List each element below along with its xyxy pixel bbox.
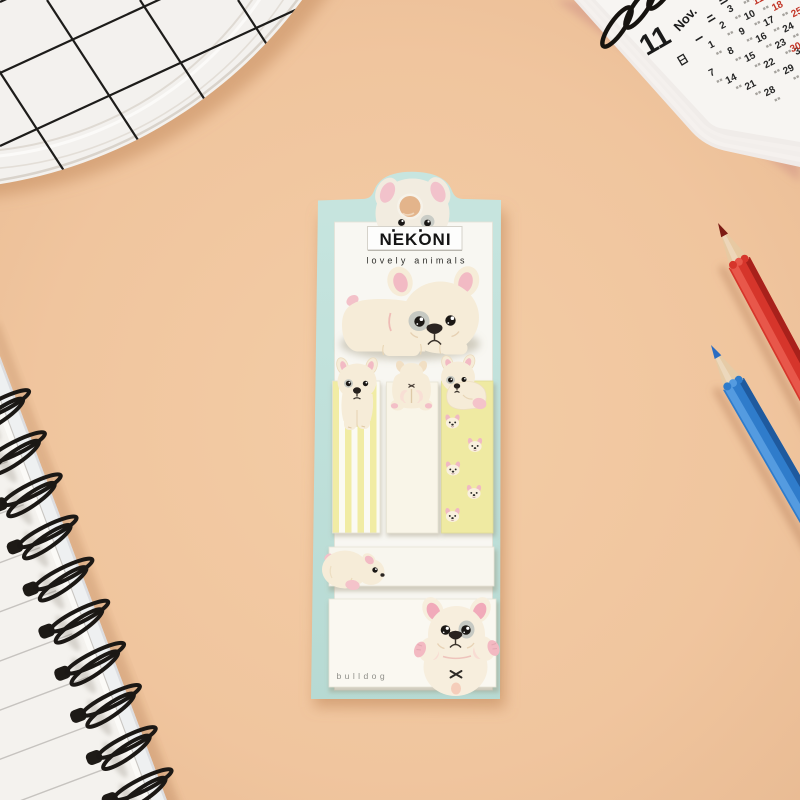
svg-text:bulldog: bulldog — [337, 671, 389, 681]
svg-text:NEKONI: NEKONI — [379, 230, 451, 249]
svg-text:lovely animals: lovely animals — [366, 256, 467, 266]
